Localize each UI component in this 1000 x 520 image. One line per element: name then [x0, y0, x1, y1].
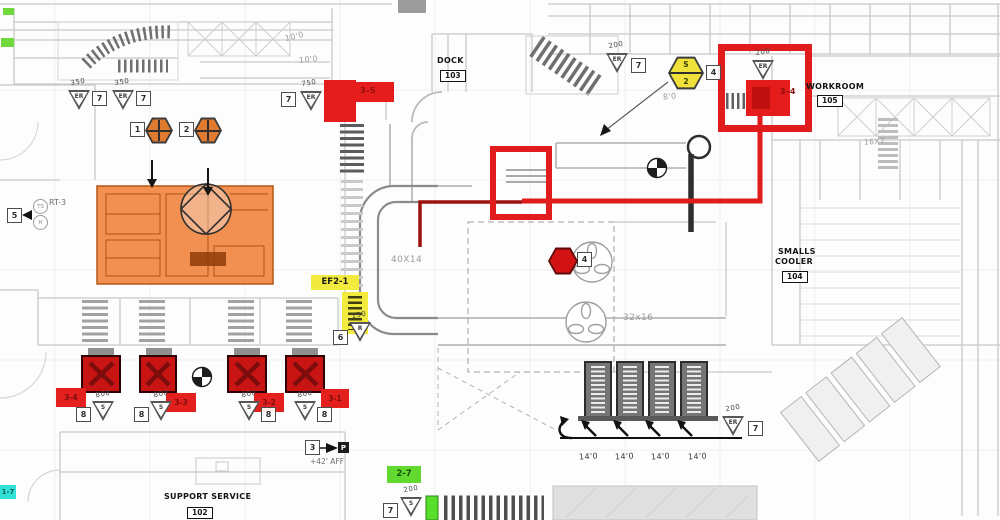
diffuser-350-er-2: ER	[112, 90, 134, 110]
dim-14-0-d: 14'0	[688, 453, 707, 462]
label-3-5: 3-5	[360, 86, 376, 95]
room-cooler: COOLER	[775, 258, 813, 266]
red-damper-hexagon	[548, 247, 578, 275]
hex-stem	[207, 120, 209, 141]
louvered-duct-curve	[86, 32, 172, 66]
green-mark-b	[1, 38, 14, 47]
diffuser-type: R	[349, 325, 371, 332]
room-dock-number: 103	[440, 70, 466, 82]
room-workroom: WORKROOM	[806, 83, 864, 91]
diffuser-type: ER	[752, 63, 774, 70]
label-3-4: 3-4	[780, 87, 796, 96]
sensor-ts: TS	[33, 199, 48, 214]
floor-plan-linework	[0, 0, 1000, 520]
keynote-7: 7	[748, 421, 763, 436]
keynote-7: 7	[383, 503, 398, 518]
hex-stem	[158, 120, 160, 141]
keynote-1: 1	[130, 122, 145, 137]
diffuser-800-s-4: S	[294, 401, 316, 421]
room-support-number: 102	[187, 507, 213, 519]
flow-arrows	[147, 82, 668, 196]
label-rt3: RT-3	[49, 199, 66, 207]
tag-ef2-1: EF2-1	[311, 275, 359, 290]
highlighted-island	[97, 184, 273, 284]
diffuser-200-er-3: ER	[722, 416, 744, 436]
keynote-8: 8	[76, 407, 91, 422]
diffuser-750-er: ER	[300, 91, 322, 111]
diffuser-type: ER	[722, 419, 744, 426]
ducts-light	[390, 92, 726, 345]
diffuser-350-er-1: ER	[68, 90, 90, 110]
duct-size-16x7: 16X7	[864, 137, 886, 146]
keynote-4a: 4	[706, 65, 721, 80]
rack-shelving	[800, 208, 960, 336]
keynote-4b: 4	[577, 252, 592, 267]
tag-2-7: 2-7	[387, 466, 421, 483]
hex-bar	[670, 72, 702, 74]
diffuser-200-er-1: ER	[606, 53, 628, 73]
markup-box-large	[718, 44, 812, 132]
note-aff: +42' AFF	[310, 458, 344, 466]
diffuser-150-r: R	[349, 322, 371, 342]
keynote-7: 7	[136, 91, 151, 106]
dim-14-0-b: 14'0	[615, 453, 634, 462]
tag-hood-4: 3-1	[321, 389, 349, 408]
damper-hexagon-2	[194, 117, 222, 144]
damper-hexagon-1	[145, 117, 173, 144]
diffuser-800-s-2: S	[150, 401, 172, 421]
tag-hood-1: 3-4	[56, 388, 86, 407]
room-smalls-number: 104	[782, 271, 808, 283]
diffuser-type: S	[150, 404, 172, 411]
pressure-chip: P	[338, 442, 349, 453]
mechanical-plan-canvas: EF2-1 2-7 1-7 3-4 3-3 3-2 3-1 3-5 3-4 DO…	[0, 0, 1000, 520]
keynote-7: 7	[92, 91, 107, 106]
keynote-8: 8	[261, 407, 276, 422]
keynote-5: 5	[7, 208, 22, 223]
hex-label-top: S	[668, 60, 704, 69]
diffuser-type: S	[294, 404, 316, 411]
keynote-7: 7	[631, 58, 646, 73]
hatched-duct-band	[536, 46, 598, 88]
diffuser-200-s: S	[400, 497, 422, 517]
keynote-8: 8	[317, 407, 332, 422]
diffuser-800-s-1: S	[92, 401, 114, 421]
keynote-3: 3	[305, 440, 320, 455]
tag-1-7: 1-7	[0, 485, 16, 499]
duct-size-40x14: 40X14	[391, 256, 422, 265]
hood-supply-grilles	[95, 300, 299, 344]
diffuser-type: ER	[300, 94, 322, 101]
room-smalls: SMALLS	[778, 248, 816, 256]
green-highlight-duct	[426, 496, 438, 520]
coil-units	[578, 362, 718, 421]
room-dock: DOCK	[437, 57, 464, 65]
diffuser-type: ER	[606, 56, 628, 63]
keynote-2: 2	[179, 122, 194, 137]
duct-size-32x16: 32x16	[623, 314, 653, 323]
keynote-6: 6	[333, 330, 348, 345]
diffuser-800-s-3: S	[238, 401, 260, 421]
dim-14-0-c: 14'0	[651, 453, 670, 462]
sensor-h: H	[33, 215, 48, 230]
markup-box-small	[490, 146, 552, 220]
keynote-7: 7	[281, 92, 296, 107]
keynote-8: 8	[134, 407, 149, 422]
room-support-service: SUPPORT SERVICE	[164, 493, 251, 501]
door-swings	[0, 122, 60, 502]
diffuser-type: S	[400, 500, 422, 507]
hatched-pad	[553, 486, 757, 520]
diffuser-type: S	[238, 404, 260, 411]
green-mark-a	[3, 8, 14, 15]
hex-label-bottom: 2	[668, 77, 704, 86]
diffuser-200-er-2: ER	[752, 60, 774, 80]
diffuser-type: S	[92, 404, 114, 411]
dim-14-0-a: 14'0	[579, 453, 598, 462]
diffuser-type: ER	[68, 93, 90, 100]
dim-8-0: 8'0	[663, 92, 677, 101]
smoke-damper-hexagon: S 2	[668, 56, 704, 90]
room-workroom-number: 105	[817, 95, 843, 107]
roof-hatch-block	[398, 0, 426, 13]
diffuser-type: ER	[112, 93, 134, 100]
tilted-panels	[781, 318, 941, 462]
